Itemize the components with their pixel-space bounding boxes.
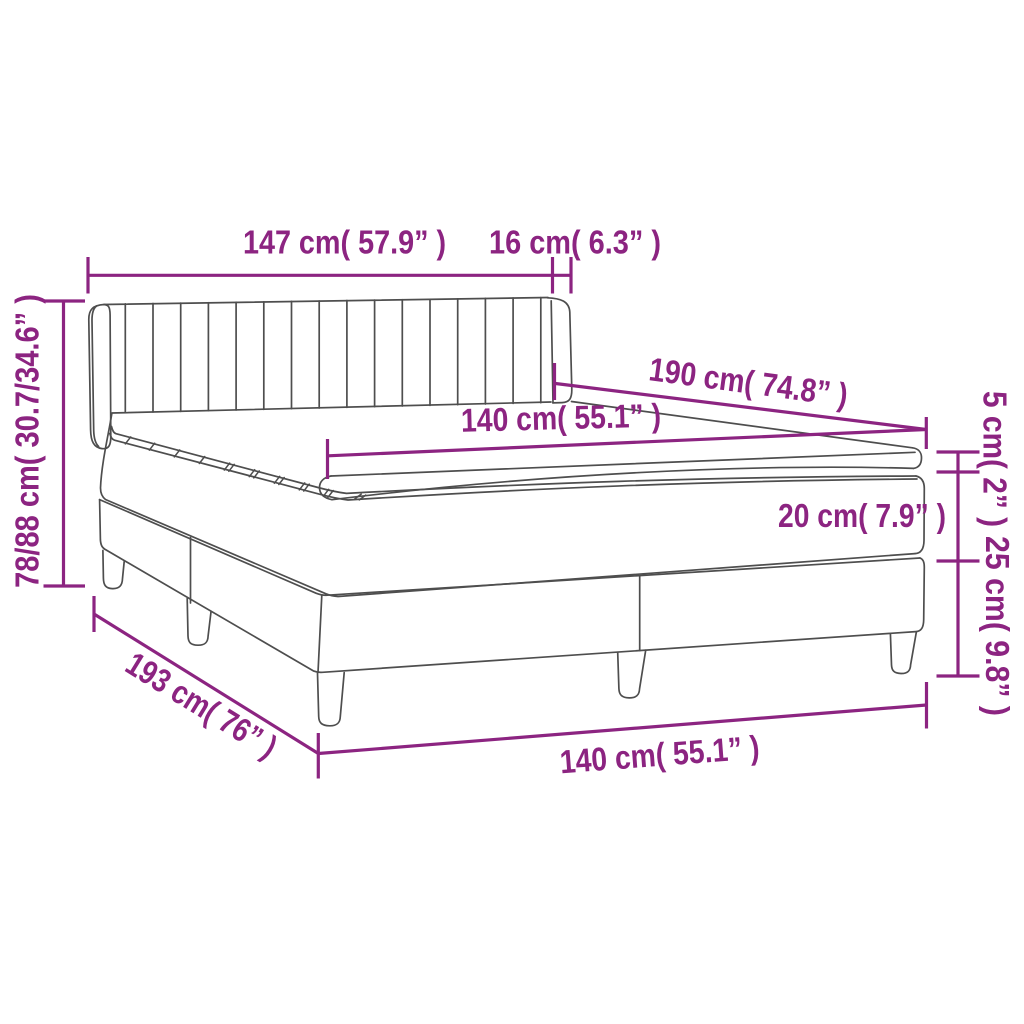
svg-text:20 cm( 7.9” ): 20 cm( 7.9” ) xyxy=(778,497,946,535)
svg-text:5 cm( 2” ): 5 cm( 2” ) xyxy=(976,391,1013,527)
svg-text:78/88 cm( 30.7/34.6” ): 78/88 cm( 30.7/34.6” ) xyxy=(9,294,46,588)
svg-text:16 cm( 6.3” ): 16 cm( 6.3” ) xyxy=(489,224,661,261)
svg-text:140 cm( 55.1” ): 140 cm( 55.1” ) xyxy=(461,397,662,440)
svg-text:147 cm( 57.9” ): 147 cm( 57.9” ) xyxy=(243,224,446,261)
svg-text:25 cm( 9.8” ): 25 cm( 9.8” ) xyxy=(979,536,1017,716)
